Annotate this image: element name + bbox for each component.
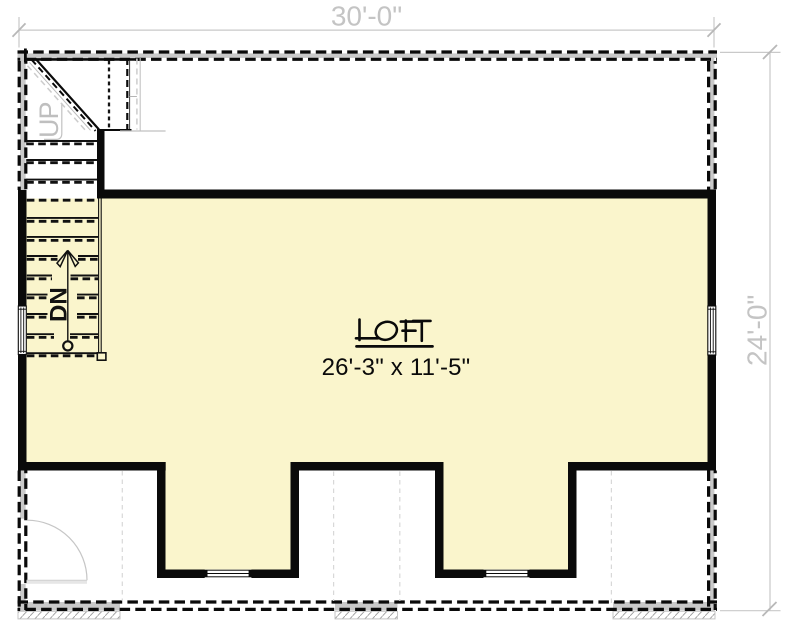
svg-text:30'-0": 30'-0"	[331, 1, 402, 32]
svg-text:24'-0": 24'-0"	[742, 295, 773, 366]
svg-text:26'-3" x 11'-5": 26'-3" x 11'-5"	[322, 354, 471, 381]
svg-text:UP: UP	[34, 102, 64, 138]
svg-text:DN: DN	[46, 287, 73, 322]
